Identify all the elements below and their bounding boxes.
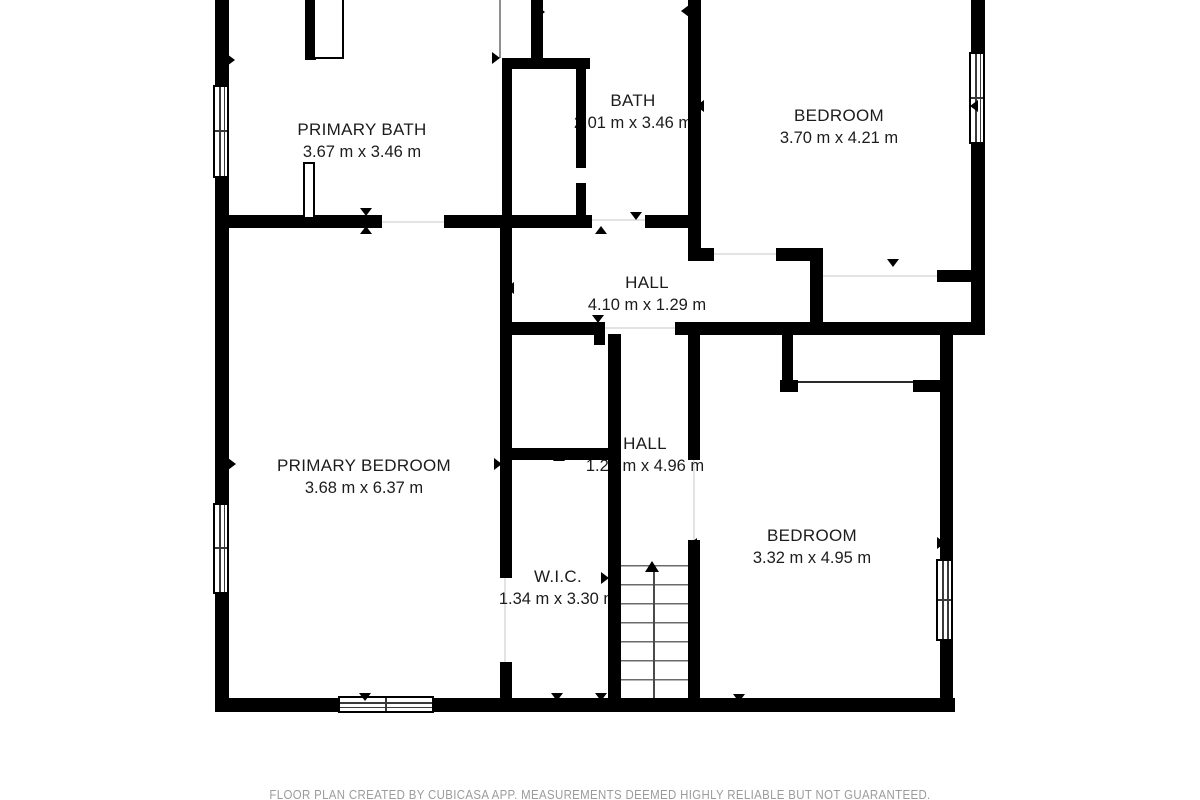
room-label-primary-bedroom: PRIMARY BEDROOM 3.68 m x 6.37 m	[277, 455, 451, 499]
wall-segment	[500, 460, 512, 578]
door-direction-arrow	[595, 693, 607, 701]
room-name: PRIMARY BATH	[297, 119, 426, 141]
shower-glass-line	[499, 0, 501, 58]
window-pane-line	[215, 547, 227, 549]
room-dimensions: 2.01 m x 3.46 m	[574, 112, 692, 134]
window-symbol	[338, 696, 434, 713]
wall-segment	[500, 322, 600, 335]
room-label-bath: BATH 2.01 m x 3.46 m	[574, 90, 692, 134]
room-dimensions: 1.34 m x 3.30 m	[499, 588, 617, 610]
staircase	[621, 565, 688, 699]
cabinet-fixture	[313, 0, 344, 59]
room-name: BEDROOM	[753, 525, 871, 547]
room-label-hall: HALL 4.10 m x 1.29 m	[588, 272, 706, 316]
wall-segment	[215, 698, 955, 712]
room-dimensions: 4.10 m x 1.29 m	[588, 294, 706, 316]
wall-segment	[608, 334, 621, 712]
window-pane-line	[224, 505, 226, 592]
wall-segment	[688, 248, 714, 261]
room-name: PRIMARY BEDROOM	[277, 455, 451, 477]
wall-segment	[937, 270, 974, 282]
wall-segment	[971, 0, 985, 333]
room-label-bedroom-top-right: BEDROOM 3.70 m x 4.21 m	[780, 105, 898, 149]
window-edge-arrow	[733, 694, 745, 702]
wall-segment	[215, 215, 382, 228]
window-pane-line	[224, 87, 226, 176]
room-dimensions: 3.67 m x 3.46 m	[297, 141, 426, 163]
wall-segment	[688, 540, 700, 712]
door-direction-arrow	[592, 315, 604, 323]
window-pane-line	[219, 505, 221, 592]
window-pane-line	[938, 599, 951, 601]
window-edge-arrow	[970, 100, 978, 112]
window-symbol	[213, 503, 229, 594]
wall-segment	[576, 183, 586, 218]
window-pane-line	[971, 97, 983, 99]
door-leaf	[303, 162, 315, 219]
room-name: W.I.C.	[499, 566, 617, 588]
door-direction-arrow	[595, 226, 607, 234]
wall-segment	[688, 334, 700, 460]
floor-plan-canvas: PRIMARY BATH 3.67 m x 3.46 m BATH 2.01 m…	[0, 0, 1200, 800]
room-name: HALL	[588, 272, 706, 294]
window-symbol	[936, 559, 953, 641]
room-dimensions: 3.68 m x 6.37 m	[277, 477, 451, 499]
room-dimensions: 3.32 m x 4.95 m	[753, 547, 871, 569]
door-direction-arrow	[887, 259, 899, 267]
door-threshold	[823, 275, 937, 277]
wall-segment	[500, 662, 512, 712]
wall-segment	[782, 328, 793, 382]
door-direction-arrow	[360, 208, 372, 216]
door-direction-arrow	[360, 226, 372, 234]
wall-segment	[576, 69, 586, 168]
door-direction-arrow	[551, 693, 563, 701]
door-direction-arrow	[506, 282, 514, 294]
wall-segment	[780, 380, 798, 392]
window-symbol	[969, 52, 985, 144]
window-edge-arrow	[937, 537, 945, 549]
door-direction-arrow	[492, 52, 500, 64]
wall-segment	[645, 215, 692, 228]
window-pane-line	[385, 698, 387, 711]
door-direction-arrow	[537, 6, 545, 18]
door-direction-arrow	[601, 572, 609, 584]
window-pane-line	[215, 130, 227, 132]
wall-segment	[444, 215, 592, 228]
room-dimensions: 3.70 m x 4.21 m	[780, 127, 898, 149]
door-direction-arrow	[810, 282, 818, 294]
door-direction-arrow	[696, 100, 704, 112]
room-label-wic: W.I.C. 1.34 m x 3.30 m	[499, 566, 617, 610]
door-threshold	[714, 253, 776, 255]
wall-segment	[913, 380, 940, 392]
door-direction-arrow	[689, 538, 697, 550]
window-symbol	[213, 85, 229, 178]
wall-segment	[502, 58, 512, 218]
window-edge-arrow	[359, 693, 371, 701]
wall-segment	[594, 322, 605, 345]
window-edge-arrow	[228, 458, 236, 470]
window-pane-line	[219, 87, 221, 176]
wall-segment	[675, 322, 985, 335]
footer-disclaimer: FLOOR PLAN CREATED BY CUBICASA APP. MEAS…	[269, 787, 930, 800]
room-label-bedroom-bottom-right: BEDROOM 3.32 m x 4.95 m	[753, 525, 871, 569]
door-threshold	[382, 221, 444, 223]
room-label-primary-bath: PRIMARY BATH 3.67 m x 3.46 m	[297, 119, 426, 163]
wall-segment	[502, 58, 590, 69]
wall-segment	[940, 322, 953, 712]
door-threshold	[605, 327, 675, 329]
wall-segment	[500, 215, 512, 448]
stairs-up-arrow	[645, 561, 659, 572]
door-direction-arrow	[553, 453, 565, 461]
closet-front-line	[798, 381, 913, 383]
window-edge-arrow	[227, 54, 235, 66]
room-name: BEDROOM	[780, 105, 898, 127]
door-direction-arrow	[630, 212, 642, 220]
door-direction-arrow	[681, 5, 689, 17]
door-direction-arrow	[494, 458, 502, 470]
room-name: BATH	[574, 90, 692, 112]
